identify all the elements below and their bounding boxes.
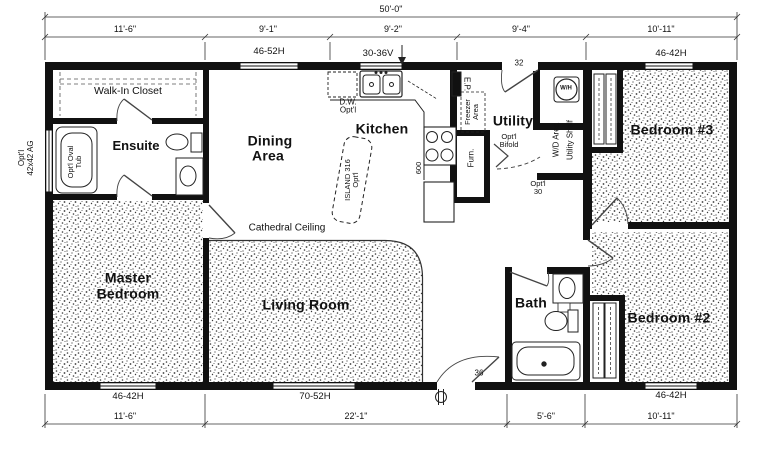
top-dimension-3: 9'-2" xyxy=(384,25,402,35)
bedroom2-window xyxy=(645,383,697,389)
bath-right-wall xyxy=(583,267,590,382)
bedroom3-closet-right-wall xyxy=(617,70,623,153)
bath-toilet-tank xyxy=(568,310,578,332)
hall-bedroom2-wall-stub xyxy=(583,229,590,240)
kitchen-sink-window xyxy=(360,63,402,69)
living-room-window xyxy=(273,383,355,389)
wall-closet-ensuite-left xyxy=(53,118,117,124)
bath-top-wall-right xyxy=(547,267,583,274)
kitchen-label: Kitchen xyxy=(356,121,409,136)
water-heater-closet-bottom-wall xyxy=(533,123,590,130)
faucet-dot xyxy=(375,72,377,74)
dining-window xyxy=(240,63,298,69)
bath-fixtures xyxy=(512,274,583,380)
faucet-dot xyxy=(380,72,382,74)
closet-doors xyxy=(593,74,616,378)
top-dimension-1: 11'-6" xyxy=(114,25,136,35)
master-bedroom-door xyxy=(209,205,235,239)
exterior-wall-left xyxy=(45,70,53,382)
bedroom3-bottom-wall xyxy=(628,222,737,229)
wd-area-label: W/D Area xyxy=(553,123,562,157)
floor-plan: 50'-0" 11'-6" 9'-1" 9'-2" 9'-4" 10'-11" … xyxy=(0,0,764,449)
living-room-label: Living Room xyxy=(263,297,350,312)
bedroom2-label: Bedroom #2 xyxy=(628,310,711,325)
furnace-closet-right-wall xyxy=(484,130,490,203)
bath-sink xyxy=(559,278,575,299)
bedroom2-window-label: 46-42H xyxy=(655,391,686,401)
bedroom3-label: Bedroom #3 xyxy=(631,122,714,137)
ensuite-toilet-tank xyxy=(191,133,202,152)
furnace-closet-bottom-wall xyxy=(450,197,490,203)
dishwasher-label-2: Opt'l xyxy=(340,107,356,116)
utility-shelf-label: Utility Shelf xyxy=(567,120,576,160)
bedroom3-bottom-wall-stub xyxy=(583,222,592,229)
corner-counter-dashed xyxy=(408,81,437,99)
rear-door-size-label: 32 xyxy=(515,60,524,69)
dining-window-label: 46-52H xyxy=(253,47,284,57)
ensuite-door xyxy=(117,175,152,197)
cathedral-ceiling-note: Cathedral Ceiling xyxy=(249,223,326,234)
living-window-label: 70-52H xyxy=(299,392,330,402)
overall-width-dimension: 50'-0" xyxy=(380,5,403,15)
floorplan-linework xyxy=(0,0,764,449)
master-bedroom-label-2: Bedroom xyxy=(97,286,160,301)
bath-top-wall-left xyxy=(505,267,510,274)
dining-area-label-2: Area xyxy=(252,148,284,163)
walkin-closet-door xyxy=(117,99,152,121)
optional-ag-window-label: Opt'l 42x42 AG xyxy=(18,140,36,175)
ensuite-sink xyxy=(180,166,196,186)
bath-left-wall xyxy=(505,267,512,382)
range-code-label: 600 xyxy=(415,162,423,175)
ensuite-tub-window xyxy=(46,130,52,192)
top-dimension-4: 9'-4" xyxy=(512,25,530,35)
tub-drain xyxy=(542,362,546,366)
wall-master-living xyxy=(203,238,209,382)
island-label: ISLAND 316 Opt'l xyxy=(344,159,361,201)
bifold-door-label: Opt'l Bifold xyxy=(500,133,519,150)
bath-door xyxy=(510,272,549,286)
wall-closet-ensuite-right xyxy=(152,118,203,124)
wall-master-dining-upper xyxy=(203,70,209,203)
bottom-dimension-1: 11'-6" xyxy=(114,412,136,422)
freezer-area-label: Freezer Area xyxy=(464,99,481,125)
kitchen-fixtures xyxy=(328,71,456,225)
bottom-dimension-2: 22'-1" xyxy=(345,412,368,422)
bottom-dimension-4: 10'-11" xyxy=(647,412,674,422)
bath-toilet xyxy=(545,312,567,331)
bath-tub-inner xyxy=(517,347,574,375)
wall-ensuite-master-left xyxy=(53,194,117,200)
ensuite-label: Ensuite xyxy=(113,139,160,153)
water-heater-label: W/H xyxy=(560,86,572,93)
bottom-dimension-3: 5'-6" xyxy=(537,412,555,422)
utility-label: Utility xyxy=(493,113,533,128)
top-dimension-2: 9'-1" xyxy=(259,25,277,35)
faucet-dot xyxy=(385,72,387,74)
water-heater-closet-left-wall xyxy=(533,70,540,123)
electrical-panel xyxy=(452,72,461,96)
furnace-label: Furn. xyxy=(468,149,477,168)
front-entry-door xyxy=(437,356,499,382)
bath-label: Bath xyxy=(515,295,547,310)
optional-30-door xyxy=(497,157,540,169)
front-door-size-label: 36 xyxy=(475,370,484,379)
front-door-opening xyxy=(437,381,475,391)
optional-30-door-label: Opt'l 30 xyxy=(530,180,545,197)
dishwasher-optional xyxy=(328,72,357,97)
carpet-areas xyxy=(53,70,729,382)
bedroom3-closet-bottom-wall xyxy=(591,147,623,153)
bedroom2-closet-right-wall xyxy=(619,295,625,382)
kitchen-window-label: 30-36V xyxy=(363,49,394,59)
ensuite-toilet xyxy=(166,134,188,150)
utility-rear-door xyxy=(501,70,538,92)
refrigerator xyxy=(424,182,454,222)
walk-in-closet-label: Walk-In Closet xyxy=(94,86,162,98)
bedroom3-window-label: 46-42H xyxy=(655,49,686,59)
exterior-light-icon xyxy=(436,389,447,405)
wall-utility-bedroom3 xyxy=(583,70,592,229)
master-window-label: 46-42H xyxy=(112,392,143,402)
bedroom3-window xyxy=(645,63,693,69)
master-window xyxy=(100,383,156,389)
master-bedroom-label-1: Master xyxy=(105,270,151,285)
top-dimension-5: 10'-11" xyxy=(647,25,674,35)
electrical-panel-label: E.P. xyxy=(462,77,471,91)
optional-tub-label: Opt'l Oval Tub xyxy=(67,146,84,179)
